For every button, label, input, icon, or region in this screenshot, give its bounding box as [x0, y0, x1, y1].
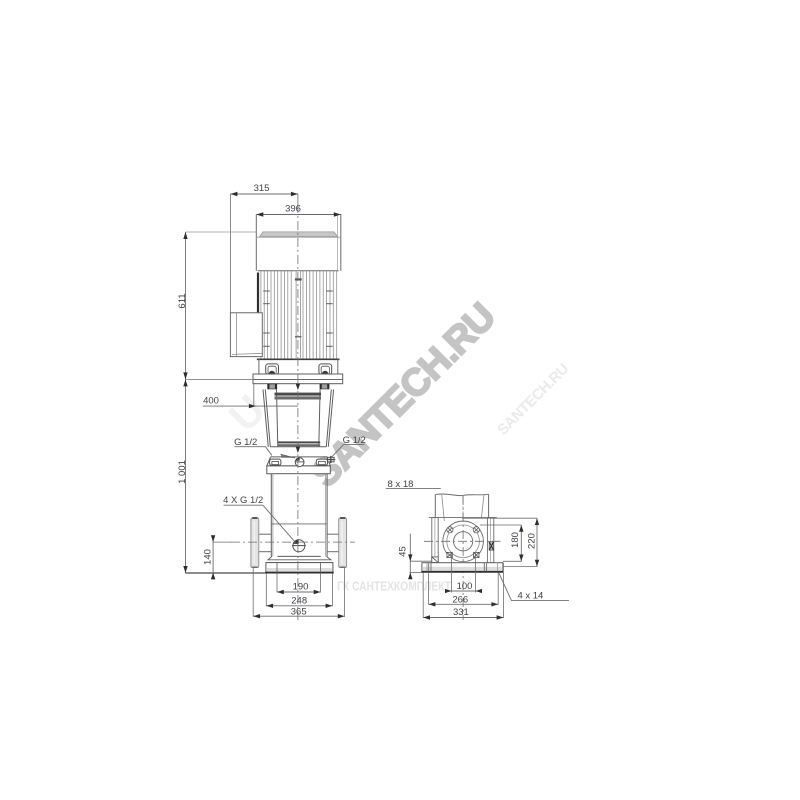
svg-text:G 1/2: G 1/2: [234, 437, 257, 448]
svg-text:45: 45: [398, 546, 409, 557]
svg-text:611: 611: [177, 293, 188, 308]
svg-text:315: 315: [254, 183, 270, 194]
svg-text:190: 190: [293, 582, 309, 593]
svg-text:220: 220: [527, 533, 538, 549]
svg-text:266: 266: [452, 595, 468, 606]
svg-text:180: 180: [510, 532, 521, 548]
svg-text:G 1/2: G 1/2: [343, 435, 366, 446]
svg-text:1 001: 1 001: [177, 460, 188, 484]
svg-text:248: 248: [291, 596, 307, 607]
svg-text:4 X G 1/2: 4 X G 1/2: [223, 495, 263, 506]
svg-text:4 x 14: 4 x 14: [517, 591, 543, 602]
svg-text:140: 140: [203, 549, 214, 565]
svg-text:396: 396: [285, 204, 301, 215]
svg-text:100: 100: [457, 581, 473, 592]
svg-text:365: 365: [291, 607, 307, 618]
svg-text:400: 400: [203, 395, 219, 406]
svg-text:ГК САНТЕХКОМПЛЕКТ: ГК САНТЕХКОМПЛЕКТ: [337, 580, 451, 594]
svg-text:8 x 18: 8 x 18: [388, 479, 414, 490]
svg-text:331: 331: [453, 607, 469, 618]
